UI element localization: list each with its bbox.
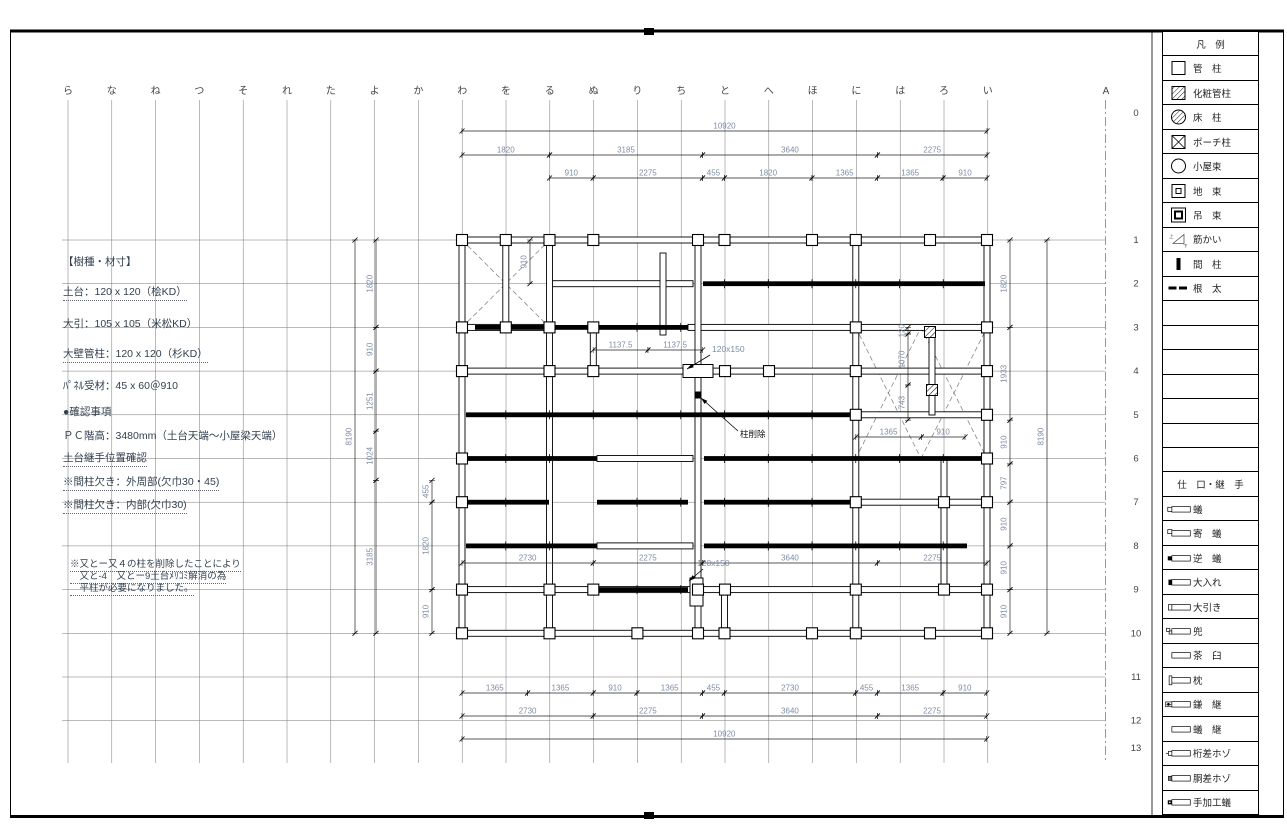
grid-col-label: ぬ xyxy=(589,85,599,97)
notes-confirmation: ●確認事項 ＰＣ階高：3480mm（土台天端～小屋梁天端） 土台継手位置確認 ※… xyxy=(63,400,282,518)
legend-empty-row xyxy=(1163,399,1258,423)
legend-row-circle: 小屋束 xyxy=(1163,154,1258,178)
notes-confirm-title: ●確認事項 xyxy=(63,400,282,424)
legend-item-label: 小屋束 xyxy=(1193,159,1258,173)
column-symbol xyxy=(982,628,993,639)
dou-joint-icon xyxy=(1163,770,1193,786)
column-symbol xyxy=(588,366,599,377)
grid-row-label: 2 xyxy=(1133,279,1138,290)
sill-beam xyxy=(856,412,987,418)
column-symbol xyxy=(807,235,818,246)
note-line: ＰＣ階高：3480mm（土台天端～小屋梁天端） xyxy=(63,424,282,448)
sill-beam xyxy=(984,240,990,633)
legend-item-label: 間 柱 xyxy=(1193,257,1258,271)
ari-joint-icon xyxy=(1163,501,1193,517)
legend-row-yose: 寄 蟻 xyxy=(1163,521,1258,545)
oobiki-joint-icon xyxy=(1163,599,1193,615)
legend-item-label: 大引き xyxy=(1193,600,1258,614)
column-symbol xyxy=(850,235,861,246)
column-symbol xyxy=(588,322,599,333)
square-double-icon xyxy=(1163,205,1193,225)
dim-label: 2275 xyxy=(639,707,657,716)
plan-annotation: 120x150 xyxy=(712,344,745,354)
grid-row-label: 0 xyxy=(1133,108,1138,119)
note-line: 土台：120 x 120（桧KD） xyxy=(63,277,208,308)
legend-row-makura: 枕 xyxy=(1163,668,1258,692)
legend-header: 凡 例 xyxy=(1163,32,1258,56)
joist-beam xyxy=(703,281,985,286)
dim-label: 743 xyxy=(898,395,907,409)
grid-col-label: よ xyxy=(370,85,380,97)
dim-label: 1820 xyxy=(497,146,515,155)
column-symbol xyxy=(457,366,468,377)
legend-joints-title: 仕 口・継 手 xyxy=(1163,477,1258,491)
legend-row-oobiki: 大引き xyxy=(1163,595,1258,619)
sill-joint-box xyxy=(683,365,713,378)
grid-col-label: そ xyxy=(238,85,248,97)
keta-joint-icon xyxy=(1163,745,1193,761)
legend-row-square-double: 吊 束 xyxy=(1163,203,1258,227)
dim-label: 1365 xyxy=(901,684,919,693)
legend-empty-row xyxy=(1163,350,1258,374)
column-symbol xyxy=(693,235,704,246)
decorative-column-symbol xyxy=(927,385,938,396)
dim-label: 910 xyxy=(565,169,579,178)
column-symbol xyxy=(588,235,599,246)
grid-axis-a-label: A xyxy=(1103,86,1110,97)
column-symbol xyxy=(693,584,704,595)
square-inner-icon xyxy=(1163,181,1193,201)
grid-col-label: る xyxy=(545,85,555,97)
column-symbol xyxy=(500,235,511,246)
registration-mark-bottom xyxy=(644,812,654,819)
notes-material-title: 【樹種・材寸】 xyxy=(63,246,208,277)
dim-label: 10920 xyxy=(713,730,736,739)
column-symbol xyxy=(544,235,555,246)
grid-row-label: 12 xyxy=(1131,716,1142,727)
dim-label: 455 xyxy=(707,684,721,693)
joist-beam xyxy=(704,544,967,549)
sill-beam xyxy=(547,240,553,633)
plan-annotation: 柱削除 xyxy=(740,429,766,439)
joist-beam xyxy=(466,412,855,417)
column-symbol xyxy=(850,628,861,639)
note-line: 大壁管柱：120 x 120（杉KD） xyxy=(63,339,208,370)
grid-col-label: か xyxy=(413,85,423,97)
square-hatch-icon xyxy=(1163,83,1193,103)
joist-beam xyxy=(597,587,688,592)
column-symbol xyxy=(850,366,861,377)
dim-label: 2275 xyxy=(639,169,657,178)
column-symbol xyxy=(850,584,861,595)
dim-label: 3185 xyxy=(617,146,635,155)
note-line: 大引：105 x 105（米松KD） xyxy=(63,308,208,339)
kama-joint-icon xyxy=(1163,696,1193,712)
column-symbol xyxy=(720,366,731,377)
dim-label: 910 xyxy=(608,684,622,693)
dim-label: 910 xyxy=(1000,604,1009,618)
grid-row-label: 1 xyxy=(1133,235,1138,246)
dim-label: 1365 xyxy=(486,684,504,693)
legend-empty-row xyxy=(1163,375,1258,399)
legend-row-ari: 蟻 xyxy=(1163,497,1258,521)
legend-row-square-x: ポーチ柱 xyxy=(1163,130,1258,154)
registration-mark-top xyxy=(644,28,654,35)
dim-label: 1820 xyxy=(759,169,777,178)
legend-item-label: 蟻 xyxy=(1193,502,1258,516)
dim-label: 2275 xyxy=(639,554,657,563)
column-symbol xyxy=(939,497,950,508)
dim-label: 1365 xyxy=(880,428,898,437)
gyaku-joint-icon xyxy=(1163,550,1193,566)
column-symbol xyxy=(588,584,599,595)
sill-beam xyxy=(856,499,987,505)
column-symbol xyxy=(693,628,704,639)
dim-label: 2730 xyxy=(781,684,799,693)
legend-joints-header: 仕 口・継 手 xyxy=(1163,472,1258,496)
column-symbol xyxy=(457,235,468,246)
joist-beam xyxy=(704,500,856,505)
dim-label: 3640 xyxy=(781,707,799,716)
grid-row-label: 8 xyxy=(1133,541,1138,552)
grid-col-label: に xyxy=(851,85,861,97)
legend-item-label: 根 太 xyxy=(1193,281,1258,295)
legend-empty-row xyxy=(1163,424,1258,448)
legend-item-label: 寄 蟻 xyxy=(1193,526,1258,540)
svg-text:下: 下 xyxy=(1183,244,1188,250)
dim-label: 1820 xyxy=(366,274,375,292)
grid-col-label: は xyxy=(895,85,905,97)
dim-label: 2730 xyxy=(519,554,537,563)
dim-label: 1365 xyxy=(836,169,854,178)
sill-beam xyxy=(550,281,694,287)
dim-label: 910 xyxy=(1000,517,1009,531)
teka-joint-icon xyxy=(1163,794,1193,810)
grid-row-label: 7 xyxy=(1133,497,1138,508)
dim-label: 1070 xyxy=(898,350,907,368)
square-icon xyxy=(1163,58,1193,78)
dim-label: 910 xyxy=(366,342,375,356)
legend-row-square: 管 柱 xyxy=(1163,56,1258,80)
sill-beam xyxy=(941,459,947,590)
column-symbol xyxy=(982,497,993,508)
legend-item-label: 地 束 xyxy=(1193,184,1258,198)
legend-row-square-hatch: 化粧管柱 xyxy=(1163,81,1258,105)
stud-symbol xyxy=(695,392,702,399)
column-symbol xyxy=(457,497,468,508)
dim-label: 1820 xyxy=(422,536,431,554)
square-x-icon xyxy=(1163,132,1193,152)
dim-label: 910 xyxy=(520,255,529,269)
dim-label: 8190 xyxy=(1037,427,1046,445)
yose-joint-icon xyxy=(1163,525,1193,541)
circle-icon xyxy=(1163,156,1193,176)
dim-label: 2275 xyxy=(923,146,941,155)
dim-label: 910 xyxy=(1000,435,1009,449)
legend-row-kama: 鎌 継 xyxy=(1163,693,1258,717)
legend-item-label: 手加工蟻 xyxy=(1193,795,1258,809)
legend-row-chausu: 茶 臼 xyxy=(1163,644,1258,668)
dim-label: 1820 xyxy=(1000,274,1009,292)
column-symbol xyxy=(544,584,555,595)
grid-col-label: わ xyxy=(457,85,467,97)
legend-item-label: 管 柱 xyxy=(1193,61,1258,75)
legend-row-brace: 上下筋かい xyxy=(1163,228,1258,252)
column-symbol xyxy=(982,322,993,333)
sill-beam xyxy=(929,333,935,415)
legend-panel: 凡 例管 柱化粧管柱床 柱ポーチ柱小屋束地 束吊 束上下筋かい間 柱根 太仕 口… xyxy=(1162,31,1259,815)
sill-beam xyxy=(597,543,693,549)
dim-label: 8190 xyxy=(345,427,354,445)
legend-row-joist: 根 太 xyxy=(1163,277,1258,301)
grid-row-label: 3 xyxy=(1133,322,1138,333)
column-symbol xyxy=(632,628,643,639)
dim-label: 1933 xyxy=(1000,364,1009,382)
dim-label: 10920 xyxy=(713,122,736,131)
legend-item-label: 化粧管柱 xyxy=(1193,86,1258,100)
legend-item-label: 枕 xyxy=(1193,673,1258,687)
brace-icon: 上下 xyxy=(1163,229,1193,249)
dim-label: 455 xyxy=(707,169,721,178)
sill-beam xyxy=(688,324,987,330)
dim-label: 3640 xyxy=(781,554,799,563)
legend-row-square-inner: 地 束 xyxy=(1163,179,1258,203)
dim-label: 910 xyxy=(1000,561,1009,575)
notes-remark: ※又とー又４の柱を削除したことにより 又と-4 又とー9土台ﾒﾘｺﾐ解消の為 平… xyxy=(70,558,241,594)
legend-row-circle-hatch: 床 柱 xyxy=(1163,105,1258,129)
dim-label: 2730 xyxy=(519,707,537,716)
legend-item-label: 蟻 継 xyxy=(1193,722,1258,736)
column-symbol xyxy=(457,628,468,639)
legend-row-aritsugi: 蟻 継 xyxy=(1163,717,1258,741)
column-symbol xyxy=(457,584,468,595)
legend-empty-row xyxy=(1163,448,1258,472)
dim-label: 2275 xyxy=(923,554,941,563)
legend-item-label: 吊 束 xyxy=(1193,208,1258,222)
grid-col-label: な xyxy=(107,85,117,97)
grid-col-label: た xyxy=(326,85,336,97)
dim-label: 3185 xyxy=(366,547,375,565)
legend-title: 凡 例 xyxy=(1163,37,1258,51)
grid-row-label: 11 xyxy=(1131,672,1141,683)
grid-row-label: 10 xyxy=(1131,628,1142,639)
legend-item-label: 兜 xyxy=(1193,624,1258,638)
column-symbol xyxy=(807,628,818,639)
legend-row-keta: 桁差ホゾ xyxy=(1163,742,1258,766)
notes-materials: 【樹種・材寸】 土台：120 x 120（桧KD） 大引：105 x 105（米… xyxy=(63,246,208,401)
joist-beam xyxy=(466,456,597,461)
joist-icon xyxy=(1163,278,1193,298)
dim-label: 910 xyxy=(422,604,431,618)
grid-col-label: ら xyxy=(63,85,73,97)
column-symbol xyxy=(939,584,950,595)
aritsugi-joint-icon xyxy=(1163,721,1193,737)
joist-beam xyxy=(466,544,597,549)
column-symbol xyxy=(850,322,861,333)
legend-item-label: 胴差ホゾ xyxy=(1193,771,1258,785)
column-symbol xyxy=(982,453,993,464)
sill-beam xyxy=(695,240,701,633)
decorative-column-symbol xyxy=(925,327,936,338)
dim-label: 1365 xyxy=(901,169,919,178)
dim-label: 797 xyxy=(1000,476,1009,490)
dim-label: 455 xyxy=(860,684,874,693)
column-symbol xyxy=(764,366,775,377)
sill-beam xyxy=(597,456,693,462)
grid-col-label: を xyxy=(501,85,511,97)
column-symbol xyxy=(500,322,511,333)
column-symbol xyxy=(925,628,936,639)
sill-beam xyxy=(503,240,509,327)
dim-label: 455 xyxy=(422,484,431,498)
legend-item-label: ポーチ柱 xyxy=(1193,135,1258,149)
column-symbol xyxy=(544,366,555,377)
dim-label: 1251 xyxy=(366,392,375,410)
note-line: ﾊﾟﾈﾙ受材：45 x 60＠910 xyxy=(63,370,208,401)
column-symbol xyxy=(982,409,993,420)
legend-item-label: 桁差ホゾ xyxy=(1193,746,1258,760)
dim-label: 1137.5 xyxy=(663,341,687,350)
grid-col-label: ろ xyxy=(939,86,949,97)
column-symbol xyxy=(719,628,730,639)
legend-item-label: 床 柱 xyxy=(1193,110,1258,124)
column-symbol xyxy=(544,322,555,333)
column-symbol xyxy=(720,584,731,595)
legend-item-label: 大入れ xyxy=(1193,575,1258,589)
grid-col-label: い xyxy=(983,86,993,97)
legend-row-kabuto: 兜 xyxy=(1163,619,1258,643)
column-symbol xyxy=(457,453,468,464)
drawing-sheet: らなねつそれたよかわをるぬりちとへほにはろいA01234567891011121… xyxy=(0,0,1287,825)
column-symbol xyxy=(850,497,861,508)
grid-col-label: へ xyxy=(764,86,774,97)
legend-item-label: 茶 臼 xyxy=(1193,648,1258,662)
grid-col-label: ね xyxy=(151,85,161,97)
sill-beam xyxy=(459,240,465,633)
legend-row-ooire: 大入れ xyxy=(1163,570,1258,594)
legend-row-gyaku: 逆 蟻 xyxy=(1163,546,1258,570)
grid-col-label: ほ xyxy=(808,85,818,97)
grid-col-label: と xyxy=(720,85,730,97)
grid-row-label: 6 xyxy=(1133,454,1138,465)
sill-beam xyxy=(660,253,666,335)
note-line: 土台継手位置確認 xyxy=(63,447,282,471)
column-symbol xyxy=(982,235,993,246)
stud-icon xyxy=(1163,254,1193,274)
plan-annotation: 120x150 xyxy=(697,558,730,568)
column-symbol xyxy=(457,322,468,333)
dim-label: 3640 xyxy=(781,146,799,155)
dim-label: 910 xyxy=(936,428,950,437)
dim-label: 1365 xyxy=(661,684,679,693)
svg-text:上: 上 xyxy=(1169,233,1174,239)
note-line: ※間柱欠き：外周部(欠巾30・45) xyxy=(63,471,282,495)
column-symbol xyxy=(925,235,936,246)
legend-empty-row xyxy=(1163,301,1258,325)
grid-row-label: 5 xyxy=(1133,410,1138,421)
dim-label: 1024 xyxy=(366,446,375,464)
dim-label: 2275 xyxy=(923,707,941,716)
grid-col-label: ち xyxy=(676,85,686,97)
joist-beam xyxy=(597,500,688,505)
column-symbol xyxy=(982,366,993,377)
kabuto-joint-icon xyxy=(1163,623,1193,639)
dim-label: 1365 xyxy=(552,684,570,693)
column-symbol xyxy=(982,584,993,595)
grid-row-label: 13 xyxy=(1131,743,1142,754)
column-symbol xyxy=(544,628,555,639)
grid-col-label: つ xyxy=(194,86,204,97)
dim-label: 910 xyxy=(958,684,972,693)
circle-hatch-icon xyxy=(1163,107,1193,127)
ooire-joint-icon xyxy=(1163,574,1193,590)
dim-label: 120 xyxy=(898,323,907,337)
grid-row-label: 9 xyxy=(1133,585,1138,596)
legend-item-label: 筋かい xyxy=(1193,232,1258,246)
grid-row-label: 4 xyxy=(1133,366,1138,377)
legend-row-dou: 胴差ホゾ xyxy=(1163,766,1258,790)
joist-beam xyxy=(466,500,549,505)
legend-row-teka: 手加工蟻 xyxy=(1163,791,1258,814)
legend-item-label: 鎌 継 xyxy=(1193,697,1258,711)
makura-joint-icon xyxy=(1163,672,1193,688)
grid-col-label: り xyxy=(632,85,642,97)
legend-item-label: 逆 蟻 xyxy=(1193,551,1258,565)
grid-col-label: れ xyxy=(282,85,292,97)
chausu-joint-icon xyxy=(1163,647,1193,663)
sill-beam xyxy=(722,590,728,634)
legend-empty-row xyxy=(1163,326,1258,350)
dim-label: 910 xyxy=(958,169,972,178)
column-symbol xyxy=(850,409,861,420)
note-line: ※間柱欠き：内部(欠巾30) xyxy=(63,494,282,518)
legend-row-stud: 間 柱 xyxy=(1163,252,1258,276)
dim-label: 1137.5 xyxy=(609,341,633,350)
column-symbol xyxy=(719,235,730,246)
